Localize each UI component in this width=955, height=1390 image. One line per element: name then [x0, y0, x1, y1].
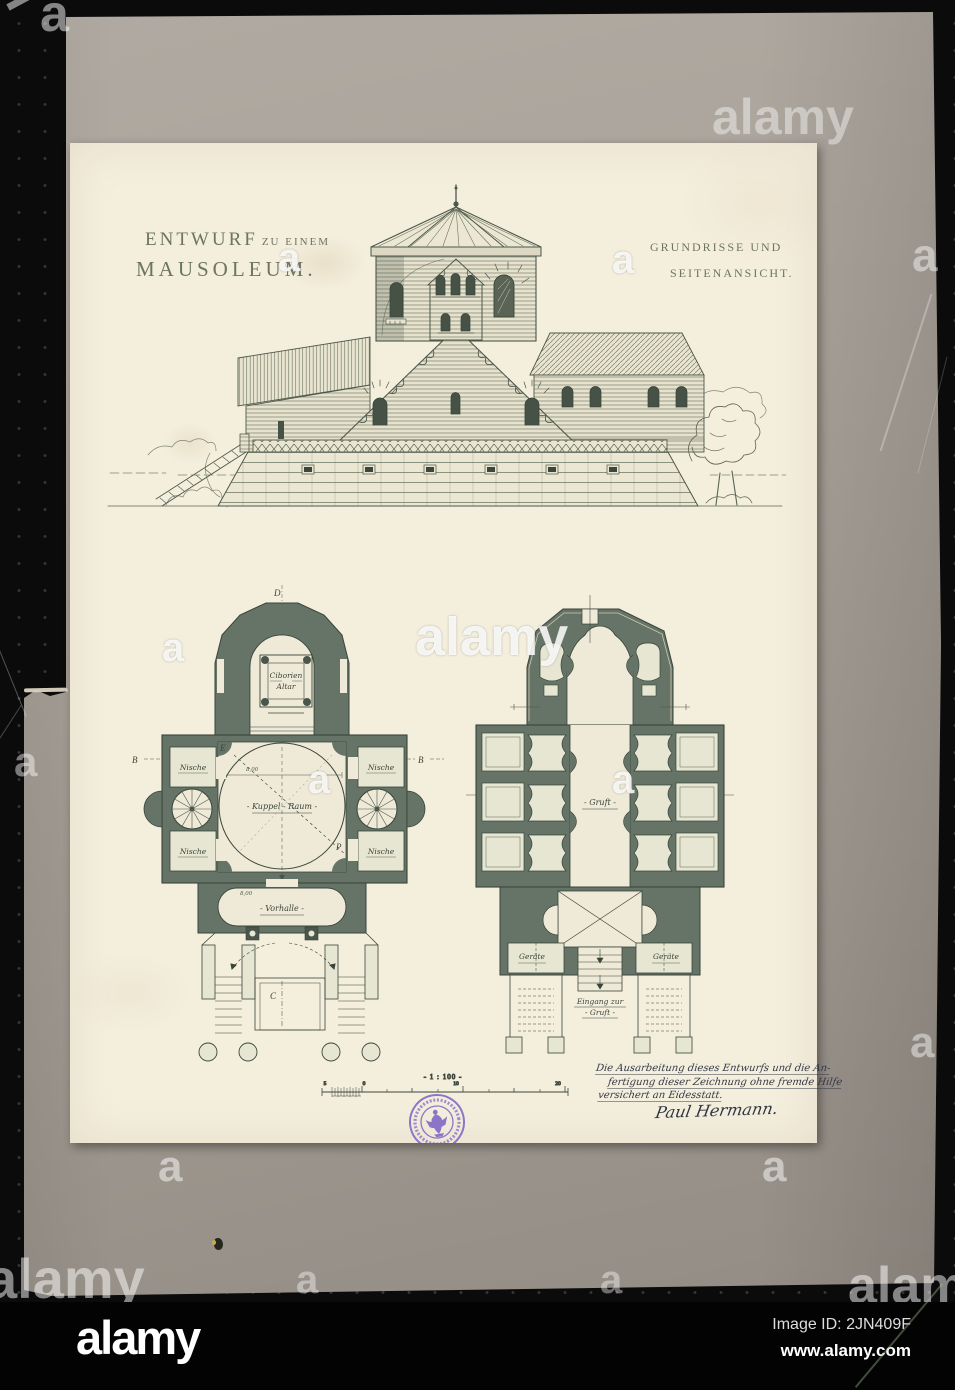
crypt-entry: Geräte Geräte Eingang zur - Gruft - [500, 887, 700, 1018]
label-kuppel-raum: - Kuppel - Raum - [247, 802, 318, 811]
terrace-plinth [156, 434, 698, 506]
label-geraete-right: Geräte [653, 952, 680, 961]
label-nische-1: Nische [179, 763, 207, 772]
image-id: Image ID: 2JN409F [772, 1316, 911, 1334]
scale-num-20: 20 [555, 1081, 561, 1087]
library-stamp [406, 1091, 469, 1143]
letter-b-right: B [418, 755, 424, 765]
dim-dome: 8,00 [246, 767, 259, 773]
spiral-stair-right [357, 789, 397, 829]
cloud-left [148, 439, 216, 455]
glass-reflection [6, 0, 39, 11]
stair-bump-right [407, 791, 425, 827]
letter-d: D [273, 588, 281, 598]
label-nische-2: Nische [179, 847, 207, 856]
alamy-logo: alamy [76, 1310, 199, 1365]
label-altar: Altar [276, 682, 296, 691]
photo-of-architectural-drawing: { "watermark": { "brand": "alamy", "lett… [0, 0, 955, 1390]
label-eingang-1: Eingang zur [576, 997, 624, 1006]
apse-slit-right [340, 659, 347, 693]
label-eingang-2: - Gruft - [585, 1008, 615, 1017]
roof-finial [453, 185, 458, 207]
board-chip-speck [212, 1240, 216, 1245]
dim-vestibule: 8,00 [240, 891, 253, 897]
apse-slit-left [217, 659, 224, 693]
letter-b-left: B [132, 755, 138, 765]
scale-num-0: 0 [363, 1081, 366, 1087]
turret-triple-arcade [436, 274, 475, 296]
vestibule-door [266, 879, 298, 887]
scale-num-5: 5 [324, 1081, 327, 1087]
label-gruft: - Gruft - [584, 798, 616, 807]
spiral-stair-left [172, 789, 212, 829]
note-line3: versichert an Eidesstatt. [597, 1090, 723, 1102]
letter-e: E [219, 743, 226, 753]
scale-bar: - 1 : 100 - 5 0 10 20 [322, 1073, 568, 1097]
elevation-drawing [108, 185, 786, 507]
drawing-sheet: ENTWURF ZU EINEM MAUSOLEUM. GRUNDRISSE U… [70, 143, 817, 1143]
stamp-eagle-icon [424, 1108, 450, 1139]
watermark-a: a [40, 0, 69, 44]
vestibule: - Vorhalle - 8,00 [198, 879, 366, 940]
label-nische-3: Nische [367, 763, 395, 772]
diamond-frieze [253, 440, 667, 452]
glass-crack [0, 628, 27, 716]
handwritten-note: Die Ausarbeitung dieses Entwurfs und die… [591, 1062, 847, 1103]
floor-plan-upper: Ciborien Altar 8,00 - Ku [132, 585, 444, 1061]
floor-plan-crypt: - Gruft - [466, 595, 734, 1053]
tower-eaves [371, 247, 541, 256]
label-vorhalle: - Vorhalle - [260, 904, 304, 913]
label-ciborien: Ciborien [270, 671, 303, 680]
note-line2: fertigung dieser Zeichnung ohne fremde H… [607, 1077, 843, 1089]
pyramid-roof [371, 207, 541, 247]
left-wing-slit [278, 421, 284, 439]
glass-crack [0, 705, 22, 758]
letter-c: C [270, 991, 277, 1001]
entrance-stairs [199, 933, 380, 1061]
letter-p: P [335, 842, 342, 852]
note-line1: Die Ausarbeitung dieses Entwurfs und die… [595, 1063, 831, 1075]
drawing-svg: Ciborien Altar 8,00 - Ku [70, 143, 817, 1143]
torn-board-edge [24, 688, 68, 693]
label-geraete-left: Geräte [519, 952, 546, 961]
scale-label: - 1 : 100 - [424, 1073, 463, 1081]
watermark-bar: alamy Image ID: 2JN409F www.alamy.com [0, 1302, 955, 1390]
alamy-url: www.alamy.com [772, 1341, 911, 1361]
stair-post [240, 434, 249, 452]
scale-num-10: 10 [453, 1081, 459, 1087]
stair-bump-left [144, 791, 162, 827]
label-nische-4: Nische [367, 847, 395, 856]
